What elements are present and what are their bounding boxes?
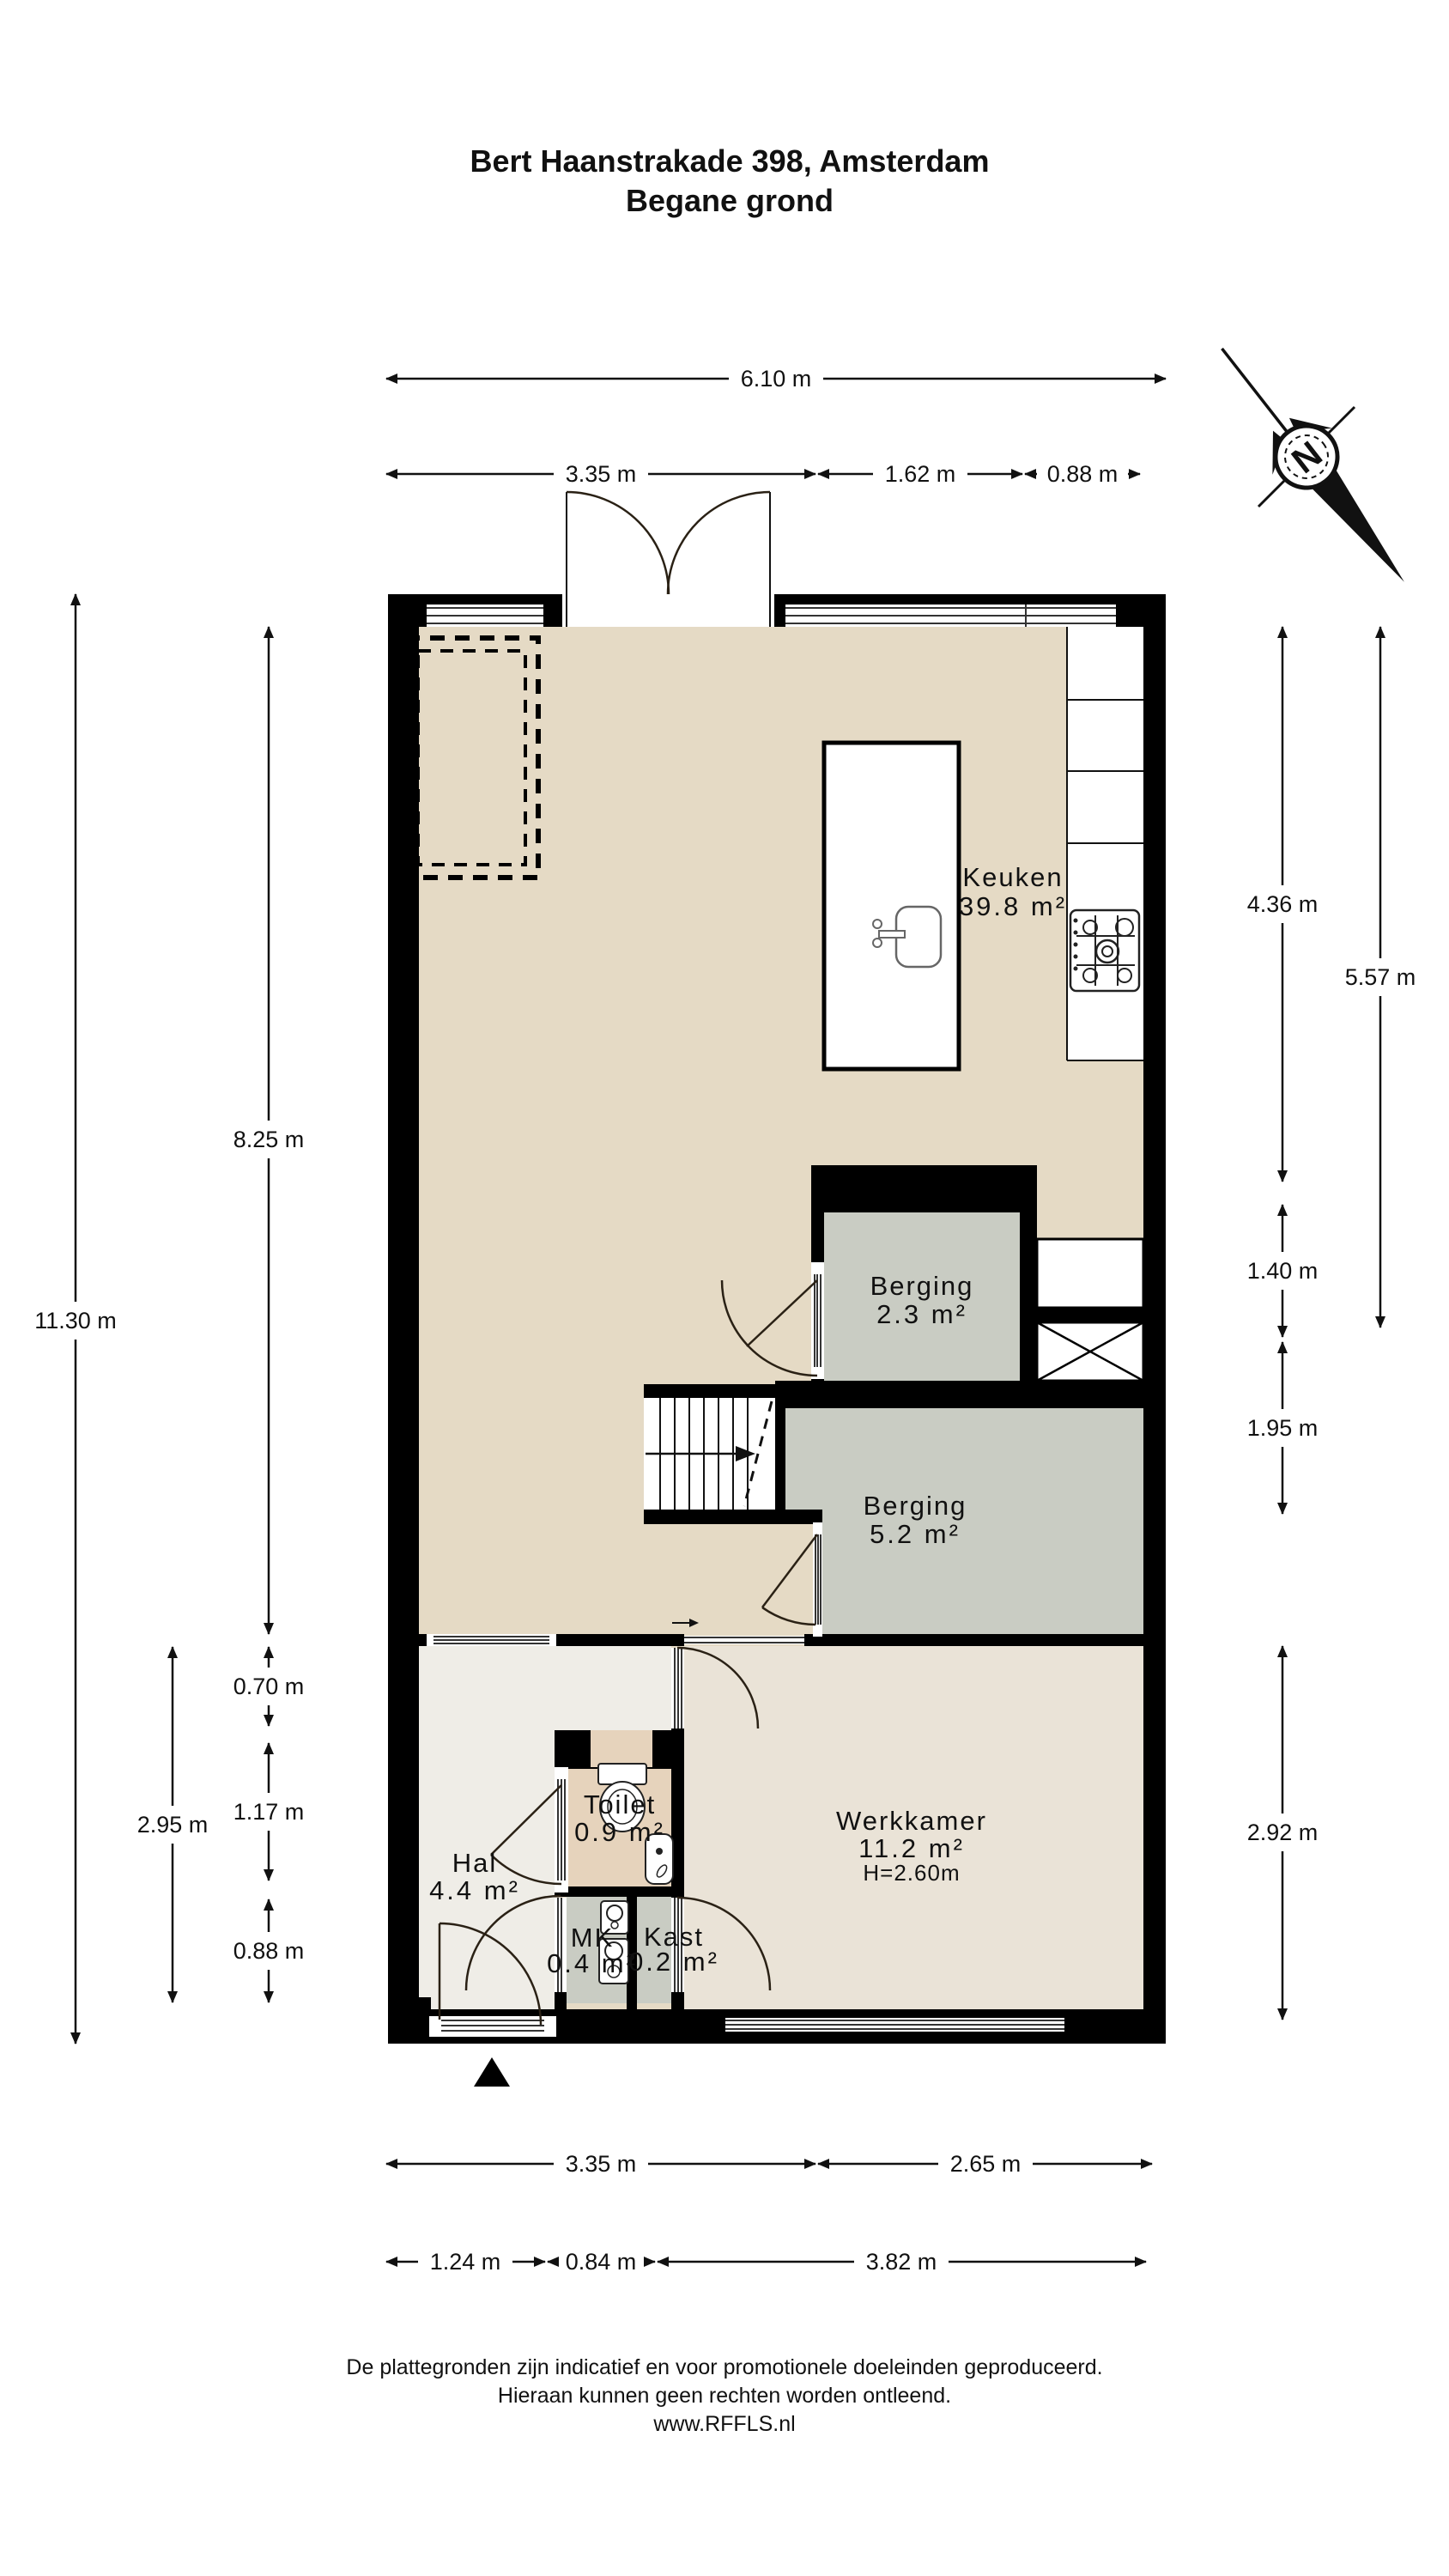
double-door-top	[562, 492, 774, 627]
dimension-left-070: 0.70 m	[233, 1647, 305, 1726]
dimension-left-295: 2.95 m	[137, 1647, 209, 2002]
entrance-marker	[474, 2057, 510, 2087]
dimension-bottom-335: 3.35 m	[386, 2151, 815, 2177]
svg-text:3.82 m: 3.82 m	[866, 2249, 937, 2275]
room-label-keuken: Keuken 39.8 m²	[959, 862, 1067, 921]
dimension-bottom-382: 3.82 m	[658, 2249, 1146, 2275]
dimension-left-088: 0.88 m	[233, 1899, 305, 2002]
dimension-left-825: 8.25 m	[233, 627, 305, 1634]
svg-text:8.25 m: 8.25 m	[233, 1127, 305, 1152]
svg-text:0.4 m²: 0.4 m²	[547, 1948, 638, 1978]
svg-text:4.36 m: 4.36 m	[1247, 891, 1319, 917]
title-line2: Begane grond	[626, 183, 834, 218]
svg-text:Hal: Hal	[452, 1848, 498, 1878]
footer-website: www.RFFLS.nl	[652, 2412, 795, 2436]
dimension-top-seg1: 3.35 m	[386, 461, 815, 487]
stove-icon	[1070, 910, 1139, 991]
window-top-right	[785, 605, 1116, 627]
crossed-shaft-box	[1037, 1322, 1143, 1381]
svg-text:Werkkamer: Werkkamer	[836, 1806, 987, 1836]
glass-partition-werkkamer	[684, 1636, 804, 1644]
svg-text:0.2 m²: 0.2 m²	[628, 1947, 719, 1977]
svg-text:3.35 m: 3.35 m	[566, 2151, 637, 2177]
svg-text:4.4 m²: 4.4 m²	[429, 1875, 520, 1905]
room-label-berging-small: Berging 2.3 m²	[870, 1271, 974, 1329]
svg-text:1.24 m: 1.24 m	[430, 2249, 501, 2275]
room-label-toilet: Toilet 0.9 m²	[574, 1789, 665, 1847]
footer-line2: Hieraan kunnen geen rechten worden ontle…	[498, 2384, 951, 2408]
dimension-left-117: 1.17 m	[233, 1743, 305, 1880]
svg-text:3.35 m: 3.35 m	[566, 461, 637, 487]
window-top-left	[427, 605, 543, 627]
svg-text:1.40 m: 1.40 m	[1247, 1258, 1319, 1284]
dimension-top-seg3: 0.88 m	[1025, 461, 1140, 487]
svg-text:0.88 m: 0.88 m	[1047, 461, 1119, 487]
compass-icon: N	[1192, 325, 1434, 605]
svg-text:0.84 m: 0.84 m	[566, 2249, 637, 2275]
svg-text:6.10 m: 6.10 m	[741, 366, 812, 392]
dimension-bottom-265: 2.65 m	[818, 2151, 1152, 2177]
svg-text:11.30 m: 11.30 m	[34, 1308, 117, 1334]
kitchen-island	[824, 743, 959, 1069]
svg-text:5.57 m: 5.57 m	[1345, 964, 1416, 990]
svg-text:39.8 m²: 39.8 m²	[959, 891, 1067, 921]
floor-berging-large	[785, 1408, 1143, 1634]
svg-text:H=2.60m: H=2.60m	[863, 1860, 960, 1886]
svg-text:1.95 m: 1.95 m	[1247, 1415, 1319, 1441]
dimension-top-total: 6.10 m	[386, 366, 1166, 392]
dimension-bottom-084: 0.84 m	[548, 2249, 655, 2275]
svg-text:0.70 m: 0.70 m	[233, 1674, 305, 1699]
dimension-right-140: 1.40 m	[1247, 1205, 1319, 1337]
title-line1: Bert Haanstrakade 398, Amsterdam	[470, 143, 990, 179]
window-bottom-right	[725, 2018, 1064, 2032]
dimension-right-436: 4.36 m	[1247, 627, 1319, 1182]
footer-disclaimer: De plattegronden zijn indicatief en voor…	[346, 2355, 1102, 2436]
shaft-box	[1037, 1239, 1143, 1308]
stairs	[644, 1398, 775, 1510]
svg-text:0.9 m²: 0.9 m²	[574, 1817, 665, 1847]
svg-text:11.2 m²: 11.2 m²	[858, 1833, 965, 1863]
svg-text:0.88 m: 0.88 m	[233, 1938, 305, 1964]
svg-text:1.62 m: 1.62 m	[885, 461, 956, 487]
toilet-niche	[591, 1730, 652, 1767]
page-title: Bert Haanstrakade 398, Amsterdam Begane …	[470, 143, 990, 218]
svg-text:Berging: Berging	[864, 1491, 967, 1521]
svg-text:2.92 m: 2.92 m	[1247, 1820, 1319, 1845]
dimension-left-total: 11.30 m	[34, 594, 117, 2044]
svg-text:2.3 m²: 2.3 m²	[876, 1299, 967, 1329]
dimension-bottom-124: 1.24 m	[386, 2249, 545, 2275]
dimension-right-195: 1.95 m	[1247, 1342, 1319, 1514]
floor-plan-canvas: Bert Haanstrakade 398, Amsterdam Begane …	[0, 0, 1449, 2576]
dimension-right-292: 2.92 m	[1247, 1646, 1319, 2020]
floorplan-page: Bert Haanstrakade 398, Amsterdam Begane …	[0, 0, 1449, 2576]
svg-text:5.2 m²: 5.2 m²	[870, 1519, 961, 1549]
svg-text:Berging: Berging	[870, 1271, 974, 1301]
dimension-right-557: 5.57 m	[1345, 627, 1416, 1327]
footer-line1: De plattegronden zijn indicatief en voor…	[346, 2355, 1102, 2379]
dimension-top-seg2: 1.62 m	[818, 461, 1022, 487]
svg-text:1.17 m: 1.17 m	[233, 1799, 305, 1825]
svg-text:2.65 m: 2.65 m	[950, 2151, 1022, 2177]
svg-text:Toilet: Toilet	[584, 1789, 656, 1820]
svg-text:Keuken: Keuken	[962, 862, 1063, 892]
window-hal-wall	[427, 1634, 556, 1646]
svg-text:2.95 m: 2.95 m	[137, 1812, 209, 1838]
room-label-berging-large: Berging 5.2 m²	[864, 1491, 967, 1549]
